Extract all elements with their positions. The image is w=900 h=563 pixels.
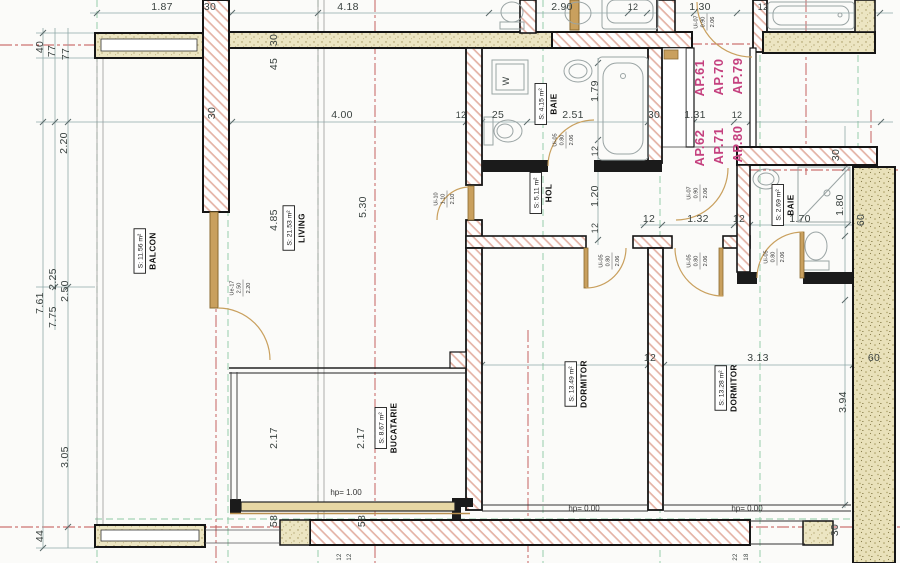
room-area: S: 8.67 m² — [379, 412, 386, 444]
door-code: Ui-05 — [764, 250, 770, 263]
room-name: DORMITOR — [580, 360, 589, 408]
room-area: S: 5.11 m² — [534, 177, 541, 209]
dim-label: 4.18 — [337, 1, 359, 13]
dim-label: 2.17 — [355, 427, 367, 449]
dim-label: 1.31 — [684, 109, 706, 121]
dim-label: W — [501, 76, 511, 85]
upper-wall-stub — [657, 0, 675, 32]
door-code: Ui-07 — [687, 186, 693, 199]
interior-wall — [466, 236, 586, 248]
door-code: Ui-10 — [434, 192, 440, 205]
apartment-label: AP.61 — [692, 60, 707, 97]
bottom-pier — [280, 520, 310, 545]
door-code: Ui-07 — [694, 15, 700, 28]
dim-label: 77 — [46, 45, 58, 57]
door-height: 2.10 — [450, 194, 456, 205]
paper-background — [0, 0, 900, 563]
dim-label: 2.17 — [268, 427, 280, 449]
dim-label: 30 — [829, 524, 841, 536]
dim-label: 1.87 — [151, 1, 173, 13]
duct-shaft — [662, 48, 686, 147]
top-structural-wall — [552, 32, 692, 48]
door-width: 0.80 — [560, 135, 566, 146]
dim-label: 45 — [268, 58, 280, 70]
room-area: S: 4.15 m² — [539, 88, 546, 120]
dim-label: 3.94 — [837, 391, 849, 413]
dim-label: 22 — [733, 553, 739, 561]
balcony-door-leaf — [210, 212, 218, 308]
door-width: 0.90 — [694, 188, 700, 199]
apartment-label: AP.62 — [692, 130, 707, 167]
floor-plan: 1.87304.182.90121.30124.0012252.51301.31… — [0, 0, 900, 563]
bottom-structural-wall — [310, 520, 750, 545]
room-name: LIVING — [298, 213, 307, 243]
dim-label: 12 — [347, 553, 353, 561]
dim-label: 12 — [732, 110, 743, 120]
room-name: HOL — [545, 184, 554, 202]
apartment-label: AP.79 — [730, 58, 745, 95]
kitchen-window-stub — [230, 499, 241, 514]
level-label: hp= 0.00 — [568, 504, 600, 513]
dim-label: 30 — [204, 1, 216, 13]
parapet-window — [101, 530, 199, 541]
floor-plan-canvas: 1.87304.182.90121.30124.0012252.51301.31… — [0, 0, 900, 563]
dim-label: 30 — [206, 107, 218, 119]
room-area: S: 11.56 m² — [138, 233, 145, 268]
dormitor-door-leaf — [584, 248, 588, 288]
room-area: S: 2.69 m² — [776, 189, 783, 221]
divider-step — [450, 352, 466, 368]
dim-label: 1.79 — [589, 80, 601, 102]
parapet-window — [101, 39, 197, 51]
dim-label: 1.32 — [687, 213, 709, 225]
level-label: hp= 0.00 — [731, 504, 763, 513]
door-height: 2.06 — [569, 135, 575, 146]
door-width: 0.90 — [701, 17, 707, 28]
dim-label: 2.20 — [58, 132, 70, 154]
dim-label: 12 — [628, 2, 639, 12]
dim-label: 30 — [648, 109, 660, 121]
dormitor-divider-wall — [648, 248, 663, 510]
kitchen-window — [241, 502, 455, 511]
room-label-dormitor: S: 13.28 m²DORMITOR — [715, 364, 739, 412]
dim-label: 3.05 — [59, 446, 71, 468]
dim-label: 60 — [855, 214, 867, 226]
dim-label: 3.13 — [747, 352, 769, 364]
dim-label: 12 — [733, 213, 745, 225]
living-left-wall — [203, 0, 229, 212]
upper-right-stub — [855, 0, 875, 32]
dim-label: 12 — [644, 352, 656, 364]
dim-label: 4.00 — [331, 109, 353, 121]
door-height: 2.06 — [780, 252, 786, 263]
door-height: 2.06 — [615, 256, 621, 267]
dormitor1-left-wall — [466, 248, 482, 510]
room-area: S: 13.28 m² — [719, 370, 726, 406]
corridor-thin-wall — [750, 48, 756, 147]
dim-label: 58 — [268, 515, 280, 527]
dim-label: 5.30 — [357, 196, 369, 218]
room-name: DORMITOR — [730, 364, 739, 412]
door-height: 2.06 — [703, 256, 709, 267]
dim-label: 60 — [868, 352, 880, 364]
dim-label: 30 — [830, 149, 842, 161]
hol-left-wall — [466, 48, 482, 185]
level-label: hp= 1.00 — [330, 488, 362, 497]
door-code: Ui-05 — [599, 254, 605, 267]
dim-label: 77 — [60, 48, 72, 60]
door-code: Ue-17 — [230, 281, 236, 296]
baie-bottom-wall — [482, 160, 548, 172]
door-height: 2.06 — [703, 188, 709, 199]
dim-label: 12 — [456, 110, 467, 120]
dim-label: 18 — [744, 553, 750, 561]
room-name: BUCATARIE — [390, 403, 399, 454]
dim-label: 2.25 — [47, 268, 59, 290]
dim-label: 7.61 — [34, 292, 46, 314]
duct-nub — [664, 50, 678, 59]
dim-label: 1.80 — [834, 194, 846, 216]
apartment-label: AP.71 — [711, 128, 726, 165]
apartment-label: AP.80 — [730, 126, 745, 163]
door-width: 2.50 — [237, 283, 243, 294]
room-name: BAIE — [787, 194, 796, 215]
room-label-balcon: S: 11.56 m²BALCON — [134, 229, 158, 274]
dim-label: 7.75 — [47, 306, 59, 328]
dim-label: 2.50 — [59, 280, 71, 302]
interior-wall-pier — [633, 236, 672, 248]
room-name: BALCON — [149, 232, 158, 269]
dim-label: 25 — [492, 109, 504, 121]
dim-label: 58 — [356, 515, 368, 527]
dim-label: 12 — [590, 146, 600, 157]
door-width: 1.10 — [441, 194, 447, 205]
door-width: 0.80 — [771, 252, 777, 263]
room-label-bucatarie: S: 8.67 m²BUCATARIE — [375, 403, 399, 454]
hol-door-leaf — [468, 186, 474, 220]
room-area: S: 21.53 m² — [287, 210, 294, 246]
baie-right-wall — [648, 48, 662, 163]
door-code: Ui-05 — [687, 254, 693, 267]
room-name: BAIE — [550, 93, 559, 114]
baie2-bottom-wall — [803, 272, 853, 284]
dim-label: 12 — [643, 213, 655, 225]
dim-label: 4.85 — [268, 209, 280, 231]
dormitor-door-leaf — [719, 248, 723, 296]
room-label-dormitor: S: 13.49 m²DORMITOR — [565, 360, 589, 408]
upper-right-wall — [763, 32, 875, 53]
door-height: 2.06 — [710, 17, 716, 28]
room-area: S: 13.49 m² — [569, 366, 576, 402]
baie2-top-wall — [737, 147, 877, 165]
dim-label: 30 — [268, 34, 280, 46]
door-width: 0.80 — [606, 256, 612, 267]
dim-label: 1.20 — [589, 185, 601, 207]
dim-label: 1.30 — [689, 1, 711, 13]
apartment-label: AP.70 — [711, 59, 726, 96]
dim-label: 44 — [34, 530, 46, 542]
baie2-door-leaf — [800, 232, 804, 278]
baie-bottom-wall — [594, 160, 662, 172]
dim-label: 12 — [758, 2, 769, 12]
dim-label: 12 — [337, 553, 343, 561]
dim-label: 12 — [590, 223, 600, 234]
dim-label: 2.90 — [551, 1, 573, 13]
dim-label: 2.51 — [562, 109, 584, 121]
baie2-bottom-wall — [737, 272, 757, 284]
door-width: 0.80 — [694, 256, 700, 267]
dim-label: 40 — [34, 41, 46, 53]
door-code: Ui-05 — [553, 133, 559, 146]
door-height: 2.20 — [246, 283, 252, 294]
